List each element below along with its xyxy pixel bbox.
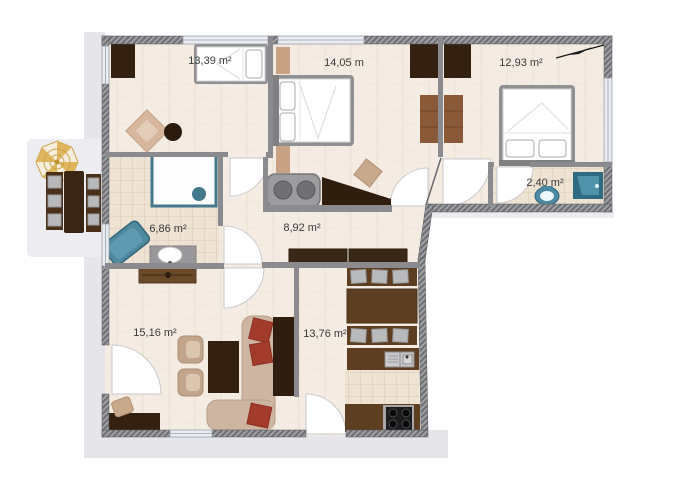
shelf-unit[interactable]	[444, 95, 463, 143]
washing-machine[interactable]	[267, 174, 320, 207]
window	[102, 224, 109, 266]
shelf-unit[interactable]	[420, 95, 438, 143]
pouf[interactable]	[164, 123, 182, 141]
wardrobe[interactable]	[111, 44, 135, 78]
shower[interactable]	[152, 155, 216, 206]
sideboard[interactable]	[139, 267, 196, 283]
room-label-bedroom-1: 13,39 m²	[188, 55, 232, 67]
dining-chairs[interactable]	[347, 326, 417, 345]
double-bed[interactable]	[499, 85, 575, 166]
kitchen-sink-counter[interactable]	[347, 348, 419, 370]
kitchen-floor-tiles	[345, 370, 419, 404]
armchair[interactable]	[178, 369, 203, 396]
red-cushion	[249, 341, 272, 365]
dining-chairs[interactable]	[347, 267, 417, 286]
armchair[interactable]	[178, 336, 203, 363]
window	[102, 46, 109, 84]
room-label-wc: 2,40 m²	[526, 177, 564, 189]
shelf[interactable]	[276, 47, 290, 74]
room-label-bedroom-3: 12,93 m²	[499, 57, 543, 69]
window	[278, 36, 364, 44]
red-cushion	[247, 403, 272, 428]
kitchen-furniture	[345, 267, 420, 432]
tv-cabinet[interactable]	[273, 317, 294, 396]
room-label-living-room: 15,16 m²	[133, 327, 177, 339]
shower-tray[interactable]	[573, 172, 603, 199]
room-label-hallway: 8,92 m²	[283, 222, 321, 234]
window	[170, 430, 212, 437]
floorplan: 13,39 m² 14,05 m 12,93 m² 2,40 m² 6,86 m…	[0, 0, 685, 485]
wardrobe[interactable]	[444, 44, 471, 78]
floorplan-canvas: 13,39 m² 14,05 m 12,93 m² 2,40 m² 6,86 m…	[0, 0, 685, 485]
room-label-bedroom-2: 14,05 m	[324, 57, 364, 69]
balcony-chairs-left[interactable]	[46, 172, 63, 230]
red-cushion	[249, 318, 273, 343]
stove-counter[interactable]	[345, 404, 420, 432]
room-label-bathroom: 6,86 m²	[149, 223, 187, 235]
shelf[interactable]	[276, 146, 290, 173]
balcony-table[interactable]	[64, 171, 84, 233]
window	[183, 36, 268, 44]
window	[604, 78, 612, 162]
desk[interactable]	[107, 413, 160, 430]
wardrobe[interactable]	[410, 44, 438, 78]
balcony-chairs-right[interactable]	[86, 174, 101, 232]
double-bed[interactable]	[273, 75, 354, 146]
dining-table[interactable]	[347, 289, 417, 323]
room-label-kitchen: 13,76 m²	[303, 328, 347, 340]
coffee-table[interactable]	[208, 341, 239, 393]
